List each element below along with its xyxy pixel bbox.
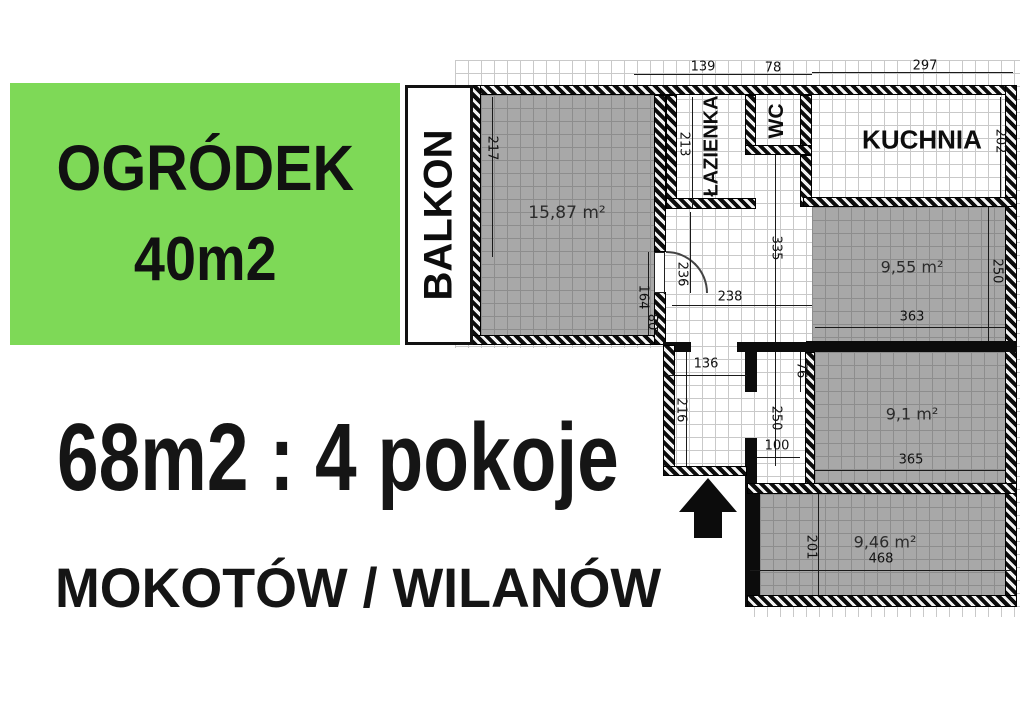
garden-badge: OGRÓDEK 40m2 xyxy=(10,83,400,345)
wall-room-a-bottom xyxy=(806,341,1017,352)
entrance-arrow-icon xyxy=(679,478,737,512)
dim-label: 76 xyxy=(794,362,809,379)
salon-area-label: 15,87 m² xyxy=(528,203,605,223)
dim-label: 136 xyxy=(694,357,719,372)
room-a-area-label: 9,55 m² xyxy=(881,258,944,277)
wc-label: WC xyxy=(765,104,789,139)
dimension-line xyxy=(750,570,1012,571)
dim-label: 100 xyxy=(765,439,790,454)
dimension-line xyxy=(492,97,493,257)
dimension-line xyxy=(692,97,693,208)
dim-label: 250 xyxy=(990,259,1005,284)
dim-label: 468 xyxy=(869,552,894,567)
dim-label: 217 xyxy=(485,136,500,161)
dimension-line xyxy=(672,305,812,306)
kitchen-label: KUCHNIA xyxy=(862,125,982,156)
dim-label: 80 xyxy=(645,314,660,331)
dimension-line xyxy=(666,375,747,376)
dimension-line xyxy=(815,470,1005,471)
garden-size: 40m2 xyxy=(134,214,277,306)
listing-location: MOKOTÓW / WILANÓW xyxy=(55,560,661,616)
wall-hall-bottom-right xyxy=(737,342,812,352)
balcony-label: BALKON xyxy=(417,129,462,300)
door-leaf xyxy=(654,252,665,293)
dim-label: 213 xyxy=(677,132,692,157)
wall-kitchen-bottom xyxy=(803,197,1017,207)
room-b-area-label: 9,1 m² xyxy=(886,405,939,424)
room-c-area-label: 9,46 m² xyxy=(854,533,917,552)
wall-corridor-bottom xyxy=(663,466,747,476)
wall-wc-bottom xyxy=(745,145,812,155)
dim-label: 201 xyxy=(804,535,819,560)
wall-salon-right-upper xyxy=(654,95,666,252)
wall-room-b-bottom xyxy=(747,483,1017,494)
wall-top xyxy=(471,85,1017,95)
listing-summary: 68m2 : 4 pokoje xyxy=(57,410,619,506)
wall-room-c-left xyxy=(747,494,760,595)
dimension-line xyxy=(690,212,691,293)
dim-label: 236 xyxy=(675,262,690,287)
garden-title: OGRÓDEK xyxy=(56,122,354,214)
real-estate-flyer: BALKON ŁAZIENKA WC KUCHNIA 15,87 m² 9,55… xyxy=(0,0,1024,720)
dim-label: 139 xyxy=(691,60,716,75)
wall-bath-left xyxy=(666,95,677,209)
dim-label: 365 xyxy=(899,453,924,468)
dim-label: 250 xyxy=(769,406,784,431)
dimension-line xyxy=(815,327,1005,328)
wall-salon-bottom xyxy=(471,335,666,345)
bathroom-label: ŁAZIENKA xyxy=(701,95,724,196)
dim-label: 164 xyxy=(636,285,651,310)
dim-label: 238 xyxy=(718,290,743,305)
entrance-arrow-stem xyxy=(694,511,722,538)
wall-room-c-bottom xyxy=(747,595,1017,607)
dim-label: 202 xyxy=(993,129,1008,154)
dim-label: 363 xyxy=(900,310,925,325)
wall-stub-upper xyxy=(745,352,757,392)
wall-bath-bottom xyxy=(666,198,756,209)
dimension-line xyxy=(757,457,800,458)
dim-label: 335 xyxy=(769,236,784,261)
dim-label: 78 xyxy=(765,61,782,76)
dim-label: 216 xyxy=(674,398,689,423)
dim-label: 297 xyxy=(913,59,938,74)
